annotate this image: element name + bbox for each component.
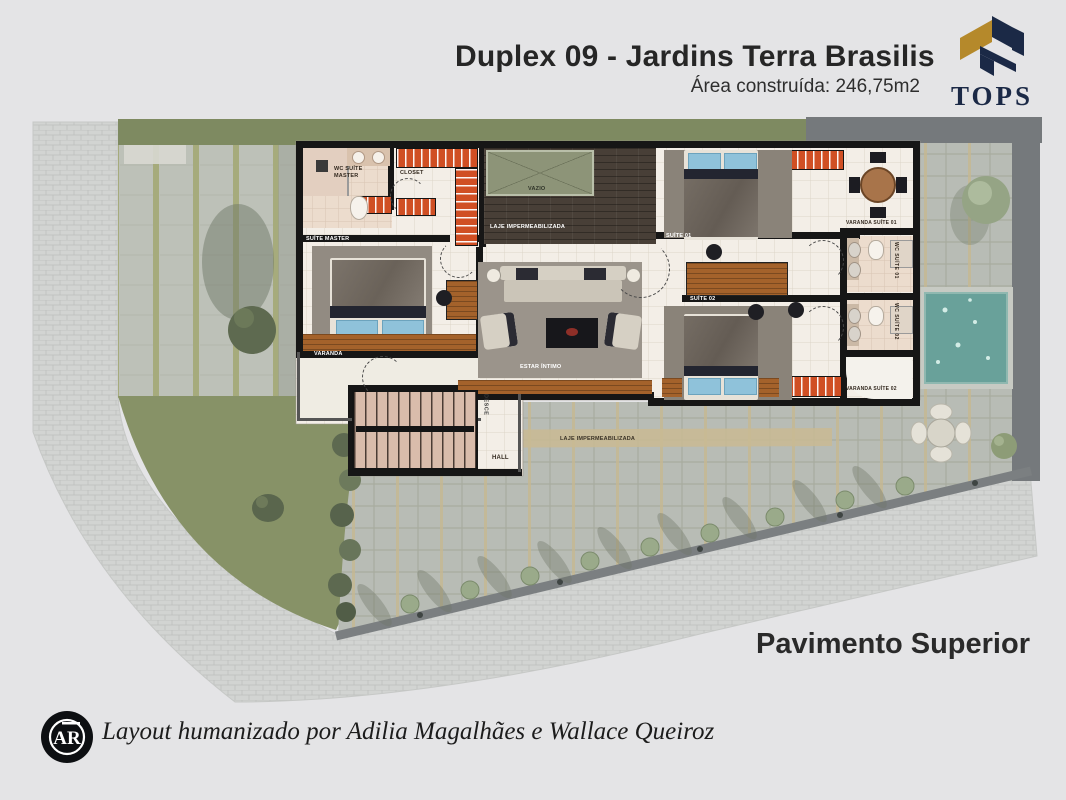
- sofa-seat: [504, 280, 622, 302]
- room-label-laje-1: LAJE IMPERMEABILIZADA: [490, 224, 565, 231]
- sofa-cushion-1: [516, 268, 538, 280]
- chair-v01-bottom: [870, 207, 886, 218]
- chair-v01-left: [849, 177, 860, 193]
- sink-wc01-2: [848, 262, 861, 278]
- tops-logo: TOPS: [942, 12, 1042, 112]
- room-label-wc-suite-01: WC SUÍTE 01: [893, 242, 899, 290]
- pillow-s02-1: [688, 378, 721, 395]
- desk-shared: [686, 262, 788, 296]
- wall-wc01-south: [845, 293, 915, 300]
- wall-north: [296, 141, 920, 148]
- tops-logo-icon: [946, 12, 1038, 78]
- sofa-cushion-2: [584, 268, 606, 280]
- area-subtitle: Área construída: 246,75m2: [455, 76, 920, 98]
- deck-suite-master: [303, 334, 476, 351]
- credit-line: Layout humanizado por Adilia Magalhães e…: [102, 718, 714, 746]
- wall-hall-south: [348, 469, 522, 476]
- armchair-left: [480, 312, 518, 350]
- bed-s02-blanket: [684, 316, 758, 366]
- room-label-wc-suite-02: WC SUÍTE 02: [893, 303, 899, 351]
- room-label-varanda: VARANDA: [314, 351, 343, 358]
- door-arc-varanda-master: [362, 356, 404, 398]
- roof-band-right: [1012, 117, 1040, 481]
- toilet-wc02: [868, 306, 884, 326]
- bed-s02-band: [684, 366, 758, 376]
- chair-suite02: [788, 302, 804, 318]
- room-label-varanda-suite-02: VARANDA SUÍTE 02: [846, 386, 897, 392]
- room-label-suite-01: SUÍTE 01: [666, 233, 691, 240]
- ar-logo: AR: [40, 710, 94, 764]
- bed-master-bench: [330, 306, 426, 318]
- chair-v01-right: [896, 177, 907, 193]
- rail-varanda-west: [297, 352, 300, 420]
- lawn-bush: [252, 494, 284, 522]
- wall-wc02-south: [845, 350, 915, 357]
- wall-varanda01-south: [845, 228, 915, 235]
- svg-text:AR: AR: [53, 728, 81, 749]
- deck-estar: [458, 380, 652, 394]
- bed-s01-band: [684, 169, 758, 179]
- pillow-s01-1: [688, 153, 721, 170]
- room-label-desce: DESCE: [482, 394, 489, 438]
- wall-hall-east: [518, 392, 521, 472]
- room-label-vazio: VAZIO: [528, 186, 545, 193]
- room-label-laje-2: LAJE IMPERMEABILIZADA: [560, 436, 635, 443]
- page-title: Duplex 09 - Jardins Terra Brasilis: [455, 40, 920, 74]
- room-label-varanda-suite-01: VARANDA SUÍTE 01: [846, 220, 897, 226]
- toilet-wc01: [868, 240, 884, 260]
- wardrobe-closet-top: [396, 148, 478, 168]
- pillow-s02-2: [724, 378, 757, 395]
- bed-master-blanket: [332, 260, 424, 308]
- sink-wc02-2: [848, 326, 861, 342]
- room-label-suite-02: SUÍTE 02: [690, 296, 715, 303]
- sink-master-2: [372, 151, 385, 164]
- wardrobe-closet-right: [455, 168, 478, 246]
- toilet-master: [350, 196, 368, 220]
- door-arc-wc02: [802, 306, 844, 348]
- nightstand-s02-left: [662, 378, 682, 397]
- page: WC SUÍTE MASTER CLOSET SUÍTE MASTER VARA…: [0, 0, 1066, 800]
- shower-head-icon: [316, 160, 328, 172]
- varanda02-canopy: [846, 357, 912, 399]
- wall-west: [296, 141, 303, 357]
- room-label-estar-intimo: ESTAR ÍNTIMO: [520, 364, 561, 371]
- sink-wc01-1: [848, 242, 861, 258]
- coffee-table-decor: [566, 328, 578, 336]
- room-label-closet: CLOSET: [400, 170, 424, 177]
- side-table-1: [486, 268, 501, 283]
- room-label-hall: HALL: [492, 455, 509, 462]
- door-arc-wc01: [802, 240, 844, 282]
- tops-logo-text: TOPS: [942, 81, 1042, 112]
- door-arc-suite01: [612, 240, 670, 298]
- chair-master: [436, 290, 452, 306]
- door-arc-suite-master: [440, 240, 478, 278]
- floor-label: Pavimento Superior: [700, 628, 1030, 661]
- nightstand-s02-right: [759, 378, 779, 397]
- room-label-suite-master: SUÍTE MASTER: [306, 236, 349, 243]
- bed-s01-blanket: [684, 179, 758, 237]
- header: Duplex 09 - Jardins Terra Brasilis Área …: [455, 40, 920, 98]
- chair-desk-1: [706, 244, 722, 260]
- sink-wc02-1: [848, 308, 861, 324]
- chair-v01-top: [870, 152, 886, 163]
- table-varanda01: [860, 167, 896, 203]
- stair-rail: [356, 426, 474, 432]
- chair-desk-2: [748, 304, 764, 320]
- sink-master-1: [352, 151, 365, 164]
- door-arc-wcmaster: [390, 178, 426, 214]
- terrace-bush: [991, 433, 1017, 459]
- roof-band-top: [806, 117, 1042, 143]
- pillow-s01-2: [724, 153, 757, 170]
- armchair-right: [604, 312, 642, 350]
- wall-east: [913, 141, 920, 406]
- pool: [919, 287, 1013, 389]
- room-label-wc-suite-master: WC SUÍTE MASTER: [334, 166, 380, 179]
